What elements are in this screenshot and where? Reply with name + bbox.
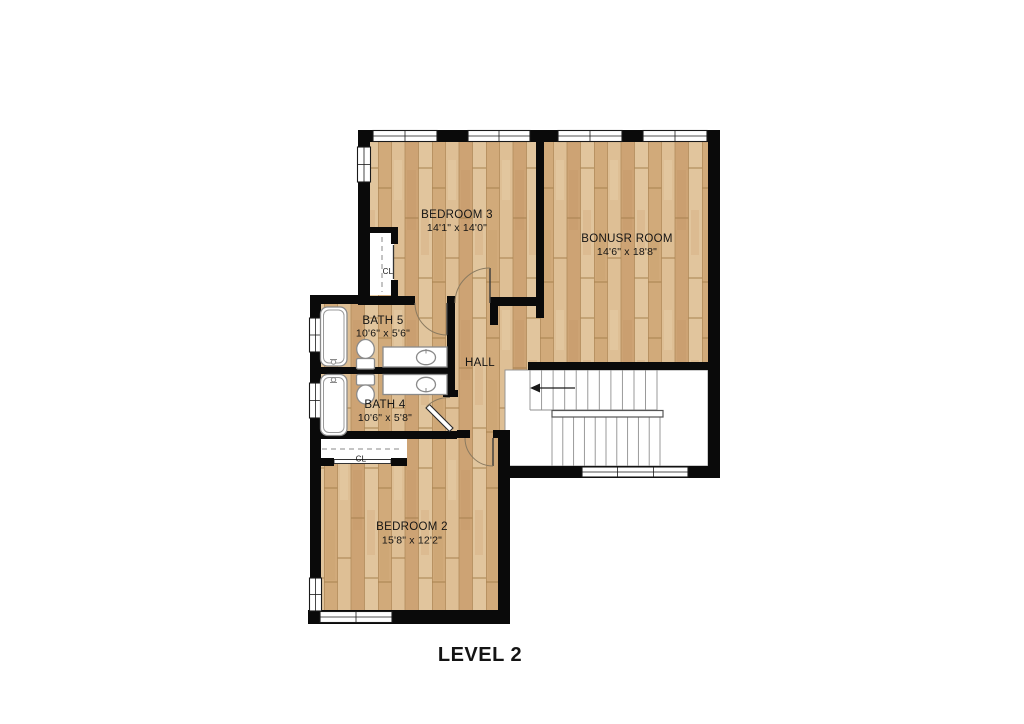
wall-bonusroom-west [536, 142, 544, 318]
wall-right [708, 130, 720, 478]
room-dims-bonusr-room: 14'6" x 18'8" [597, 246, 657, 258]
floor-plan-svg: BEDROOM 3 14'1" x 14'0" BONUSR ROOM 14'6… [0, 0, 1024, 724]
window [558, 131, 622, 142]
sink-icon [417, 377, 436, 392]
window [310, 318, 322, 352]
wall-bedroom3-bath5 [370, 296, 415, 305]
closet-label-bottom: CL [356, 455, 367, 464]
vanity [383, 375, 447, 395]
window [310, 383, 322, 418]
window [643, 131, 707, 142]
toilet [357, 340, 375, 359]
room-dims-bath-4: 10'6" x 5'8" [358, 412, 412, 424]
wall-closet-stub-a [391, 227, 398, 244]
window [373, 131, 437, 142]
room-label-bonusr-room: BONUSR ROOM [581, 233, 672, 245]
vanity [383, 347, 447, 367]
window [310, 578, 322, 611]
wall-bath5-bath4 [320, 367, 447, 374]
room-dims-bedroom-3: 14'1" x 14'0" [427, 222, 487, 234]
room-label-hall: HALL [465, 357, 495, 369]
wall-jamb-hall [490, 297, 498, 325]
room-dims-bath-5: 10'6" x 5'6" [356, 328, 410, 340]
toilet-tank [357, 359, 375, 370]
closet-bedroom-3 [370, 233, 394, 295]
room-label-bedroom-3: BEDROOM 3 [421, 209, 493, 221]
wall-hall-bedroom2-left [457, 430, 470, 438]
closet-label-top: CL [383, 267, 394, 276]
floor-plan-page: BEDROOM 3 14'1" x 14'0" BONUSR ROOM 14'6… [0, 0, 1024, 724]
stair-handrail [552, 411, 663, 418]
wall-closet2-stub-b [391, 458, 407, 466]
room-label-bath-4: BATH 4 [364, 399, 406, 411]
window [468, 131, 530, 142]
wall-closet2-stub-a [318, 458, 334, 466]
staircase [505, 370, 708, 466]
bathtub [321, 375, 348, 436]
wall-stairs-top [528, 362, 708, 370]
plan-title: LEVEL 2 [438, 644, 522, 666]
window [582, 467, 688, 477]
window [320, 612, 392, 623]
room-label-bath-5: BATH 5 [362, 315, 403, 327]
wall-bath-hall [447, 296, 455, 397]
room-label-bedroom-2: BEDROOM 2 [376, 521, 448, 533]
room-dims-bedroom-2: 15'8" x 12'2" [382, 535, 442, 547]
toilet-tank [357, 375, 375, 386]
wall-stairs-west [498, 430, 507, 477]
stairwell-floor [505, 370, 708, 466]
wall-closet-stub-b [391, 280, 398, 297]
bathtub [321, 307, 348, 366]
window [358, 147, 371, 182]
